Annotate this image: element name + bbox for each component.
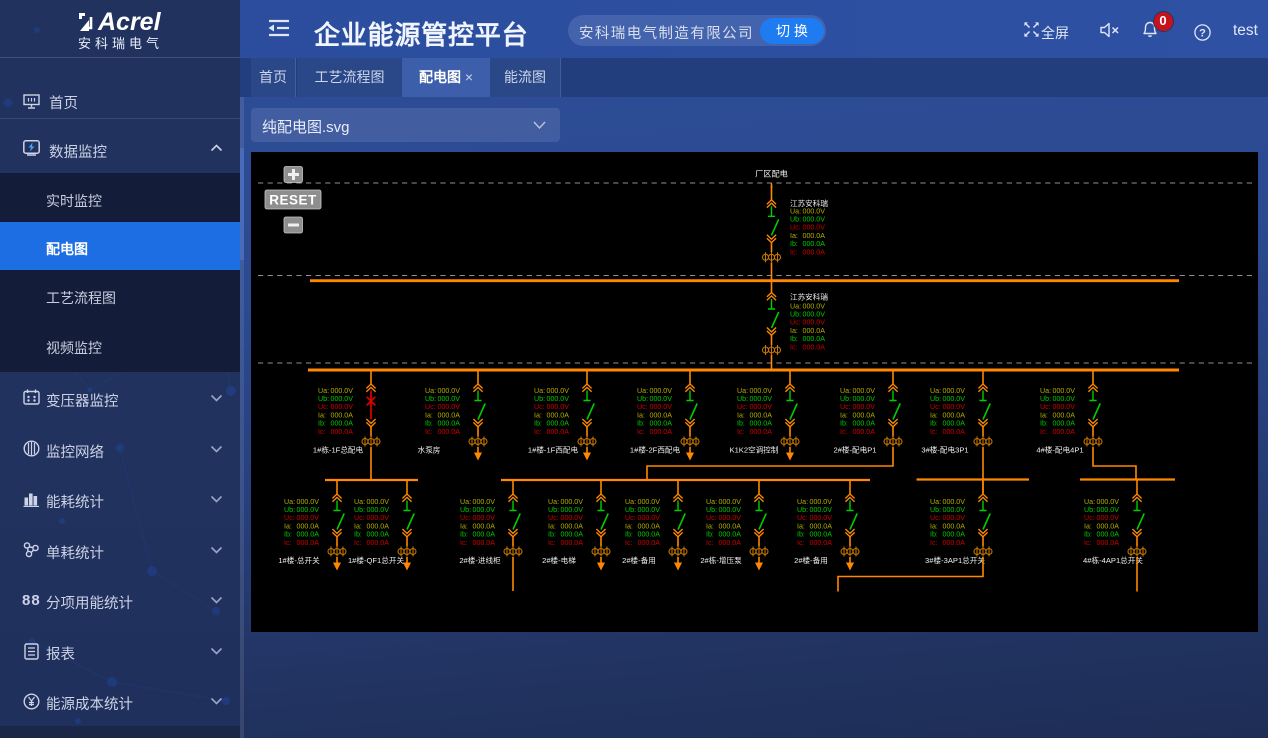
svg-text:Ua:: Ua:: [637, 387, 648, 395]
svg-text:000.0V: 000.0V: [803, 216, 826, 224]
svg-text:000.0A: 000.0A: [1053, 411, 1076, 419]
svg-text:000.0A: 000.0A: [943, 522, 966, 530]
svg-text:Ua:: Ua:: [737, 387, 748, 395]
svg-text:Ib:: Ib:: [284, 531, 292, 539]
svg-text:000.0A: 000.0A: [1097, 539, 1120, 547]
svg-text:Ic:: Ic:: [797, 539, 805, 547]
svg-text:000.0V: 000.0V: [810, 506, 833, 514]
svg-text:1#楼-总开关: 1#楼-总开关: [278, 555, 320, 565]
svg-text:Ua:: Ua:: [425, 387, 436, 395]
svg-text:Ua:: Ua:: [840, 387, 851, 395]
svg-text:000.0V: 000.0V: [803, 311, 826, 319]
svg-text:000.0A: 000.0A: [473, 522, 496, 530]
svg-text:Ub:: Ub:: [1040, 395, 1051, 403]
svg-text:000.0A: 000.0A: [803, 232, 826, 240]
svg-text:Uc:: Uc:: [706, 514, 717, 522]
svg-text:000.0A: 000.0A: [561, 539, 584, 547]
svg-text:000.0A: 000.0A: [297, 522, 320, 530]
svg-text:Ua:: Ua:: [1040, 387, 1051, 395]
svg-text:000.0V: 000.0V: [853, 395, 876, 403]
svg-text:000.0V: 000.0V: [547, 395, 570, 403]
svg-text:000.0A: 000.0A: [638, 539, 661, 547]
svg-text:Ic:: Ic:: [930, 428, 938, 436]
svg-text:000.0A: 000.0A: [719, 522, 742, 530]
svg-text:000.0A: 000.0A: [561, 531, 584, 539]
svg-text:000.0V: 000.0V: [438, 387, 461, 395]
svg-text:Uc:: Uc:: [354, 514, 365, 522]
svg-text:3#楼-配电3P1: 3#楼-配电3P1: [921, 445, 968, 455]
svg-text:Ia:: Ia:: [425, 411, 433, 419]
svg-text:厂区配电: 厂区配电: [755, 169, 788, 179]
svg-text:000.0V: 000.0V: [438, 403, 461, 411]
svg-text:Ib:: Ib:: [460, 531, 468, 539]
svg-text:000.0V: 000.0V: [810, 498, 833, 506]
svg-text:Ua:: Ua:: [534, 387, 545, 395]
svg-text:1#楼-1F西配电: 1#楼-1F西配电: [528, 445, 579, 455]
svg-text:000.0A: 000.0A: [810, 522, 833, 530]
svg-text:1#楼-QF1总开关: 1#楼-QF1总开关: [348, 555, 405, 565]
svg-text:000.0V: 000.0V: [719, 514, 742, 522]
svg-text:000.0A: 000.0A: [638, 522, 661, 530]
svg-text:000.0V: 000.0V: [473, 514, 496, 522]
svg-text:Ua:: Ua:: [548, 498, 559, 506]
svg-text:000.0A: 000.0A: [297, 539, 320, 547]
svg-text:Uc:: Uc:: [318, 403, 329, 411]
svg-text:000.0V: 000.0V: [943, 498, 966, 506]
svg-text:Ic:: Ic:: [625, 539, 633, 547]
svg-text:Ia:: Ia:: [625, 522, 633, 530]
svg-text:000.0A: 000.0A: [547, 420, 570, 428]
svg-text:Ub:: Ub:: [930, 395, 941, 403]
svg-text:000.0V: 000.0V: [750, 395, 773, 403]
svg-text:Ua:: Ua:: [460, 498, 471, 506]
svg-text:2#楼-进线柜: 2#楼-进线柜: [459, 555, 501, 565]
svg-text:000.0V: 000.0V: [297, 498, 320, 506]
svg-text:000.0A: 000.0A: [438, 411, 461, 419]
svg-text:000.0A: 000.0A: [750, 411, 773, 419]
svg-text:000.0V: 000.0V: [331, 387, 354, 395]
svg-text:000.0A: 000.0A: [547, 411, 570, 419]
svg-text:000.0V: 000.0V: [297, 514, 320, 522]
svg-text:Uc:: Uc:: [534, 403, 545, 411]
svg-text:000.0A: 000.0A: [650, 420, 673, 428]
svg-text:Ic:: Ic:: [637, 428, 645, 436]
svg-text:2#楼-电梯: 2#楼-电梯: [542, 555, 576, 565]
svg-text:Uc:: Uc:: [790, 224, 801, 232]
svg-text:Ib:: Ib:: [706, 531, 714, 539]
svg-text:Ia:: Ia:: [930, 522, 938, 530]
svg-text:000.0V: 000.0V: [561, 506, 584, 514]
svg-text:Ia:: Ia:: [637, 411, 645, 419]
svg-text:Ic:: Ic:: [790, 343, 798, 351]
svg-text:Ub:: Ub:: [737, 395, 748, 403]
svg-text:Ua:: Ua:: [625, 498, 636, 506]
svg-text:000.0A: 000.0A: [853, 411, 876, 419]
svg-text:Ub:: Ub:: [534, 395, 545, 403]
svg-text:Ic:: Ic:: [737, 428, 745, 436]
svg-text:Ia:: Ia:: [790, 327, 798, 335]
svg-text:Ic:: Ic:: [930, 539, 938, 547]
svg-text:Ib:: Ib:: [790, 335, 798, 343]
svg-text:K1K2空调控制: K1K2空调控制: [730, 445, 779, 455]
svg-text:Ib:: Ib:: [318, 420, 326, 428]
svg-text:Ib:: Ib:: [625, 531, 633, 539]
svg-text:000.0V: 000.0V: [650, 403, 673, 411]
svg-text:Ib:: Ib:: [930, 531, 938, 539]
svg-text:Ub:: Ub:: [1084, 506, 1095, 514]
svg-text:Uc:: Uc:: [548, 514, 559, 522]
svg-text:Ua:: Ua:: [930, 387, 941, 395]
svg-text:Uc:: Uc:: [637, 403, 648, 411]
svg-text:Ic:: Ic:: [1040, 428, 1048, 436]
svg-text:000.0A: 000.0A: [943, 420, 966, 428]
svg-text:000.0V: 000.0V: [650, 395, 673, 403]
svg-text:Ia:: Ia:: [534, 411, 542, 419]
svg-text:1#楼-2F西配电: 1#楼-2F西配电: [630, 445, 681, 455]
svg-text:000.0A: 000.0A: [943, 531, 966, 539]
svg-text:Ub:: Ub:: [930, 506, 941, 514]
svg-text:1#栋-1F总配电: 1#栋-1F总配电: [313, 445, 364, 455]
svg-text:000.0V: 000.0V: [561, 498, 584, 506]
svg-text:Uc:: Uc:: [790, 319, 801, 327]
svg-text:000.0V: 000.0V: [638, 506, 661, 514]
svg-text:Ub:: Ub:: [790, 216, 801, 224]
svg-text:000.0A: 000.0A: [803, 327, 826, 335]
svg-text:000.0A: 000.0A: [803, 335, 826, 343]
svg-text:000.0A: 000.0A: [650, 411, 673, 419]
svg-text:Ia:: Ia:: [284, 522, 292, 530]
svg-text:Uc:: Uc:: [930, 514, 941, 522]
svg-text:Ua:: Ua:: [354, 498, 365, 506]
svg-text:000.0A: 000.0A: [438, 420, 461, 428]
svg-text:000.0V: 000.0V: [367, 498, 390, 506]
svg-text:000.0A: 000.0A: [438, 428, 461, 436]
svg-text:000.0V: 000.0V: [943, 514, 966, 522]
svg-text:000.0A: 000.0A: [943, 539, 966, 547]
svg-text:2#栋-增压泵: 2#栋-增压泵: [700, 555, 742, 565]
svg-text:000.0A: 000.0A: [853, 420, 876, 428]
svg-text:000.0V: 000.0V: [367, 506, 390, 514]
svg-text:000.0A: 000.0A: [297, 531, 320, 539]
svg-text:000.0V: 000.0V: [331, 403, 354, 411]
svg-text:000.0V: 000.0V: [803, 319, 826, 327]
svg-text:000.0A: 000.0A: [803, 343, 826, 351]
svg-text:Ia:: Ia:: [706, 522, 714, 530]
svg-text:?: ?: [1199, 27, 1206, 39]
svg-text:Ib:: Ib:: [548, 531, 556, 539]
svg-text:000.0V: 000.0V: [943, 387, 966, 395]
svg-text:Ia:: Ia:: [318, 411, 326, 419]
svg-text:Ia:: Ia:: [354, 522, 362, 530]
svg-text:Ub:: Ub:: [354, 506, 365, 514]
svg-text:000.0A: 000.0A: [719, 539, 742, 547]
svg-text:Ua:: Ua:: [1084, 498, 1095, 506]
svg-text:Ib:: Ib:: [534, 420, 542, 428]
svg-text:Ub:: Ub:: [797, 506, 808, 514]
svg-text:000.0A: 000.0A: [1053, 428, 1076, 436]
svg-text:Ib:: Ib:: [840, 420, 848, 428]
svg-text:000.0V: 000.0V: [1097, 506, 1120, 514]
svg-text:Ub:: Ub:: [425, 395, 436, 403]
svg-text:Uc:: Uc:: [1084, 514, 1095, 522]
svg-text:Ua:: Ua:: [790, 207, 801, 215]
svg-text:Ic:: Ic:: [284, 539, 292, 547]
svg-text:000.0A: 000.0A: [367, 522, 390, 530]
svg-text:4#栋-4AP1总开关: 4#栋-4AP1总开关: [1083, 555, 1143, 565]
svg-text:Uc:: Uc:: [840, 403, 851, 411]
svg-text:Ua:: Ua:: [790, 302, 801, 310]
svg-text:Ib:: Ib:: [797, 531, 805, 539]
svg-text:Uc:: Uc:: [425, 403, 436, 411]
svg-text:Uc:: Uc:: [460, 514, 471, 522]
svg-text:Ua:: Ua:: [284, 498, 295, 506]
svg-text:Ia:: Ia:: [737, 411, 745, 419]
svg-text:Ub:: Ub:: [460, 506, 471, 514]
svg-text:2#楼-备用: 2#楼-备用: [622, 555, 656, 565]
svg-text:Ic:: Ic:: [840, 428, 848, 436]
svg-text:000.0A: 000.0A: [473, 531, 496, 539]
svg-text:江苏安科瑞: 江苏安科瑞: [790, 292, 828, 302]
svg-text:000.0V: 000.0V: [943, 506, 966, 514]
svg-text:000.0V: 000.0V: [943, 403, 966, 411]
svg-text:Ic:: Ic:: [425, 428, 433, 436]
svg-text:000.0V: 000.0V: [547, 403, 570, 411]
svg-text:Ic:: Ic:: [706, 539, 714, 547]
svg-text:000.0A: 000.0A: [803, 240, 826, 248]
svg-text:000.0V: 000.0V: [803, 207, 826, 215]
svg-text:Uc:: Uc:: [737, 403, 748, 411]
svg-text:Ia:: Ia:: [460, 522, 468, 530]
svg-text:000.0V: 000.0V: [473, 506, 496, 514]
svg-text:Ua:: Ua:: [797, 498, 808, 506]
svg-text:000.0V: 000.0V: [650, 387, 673, 395]
svg-text:Ic:: Ic:: [318, 428, 326, 436]
svg-text:Uc:: Uc:: [930, 403, 941, 411]
svg-text:000.0V: 000.0V: [853, 387, 876, 395]
svg-text:000.0A: 000.0A: [473, 539, 496, 547]
svg-text:000.0V: 000.0V: [750, 403, 773, 411]
svg-text:Ib:: Ib:: [1084, 531, 1092, 539]
svg-text:000.0V: 000.0V: [367, 514, 390, 522]
svg-text:000.0A: 000.0A: [943, 428, 966, 436]
svg-text:000.0V: 000.0V: [943, 395, 966, 403]
svg-text:000.0V: 000.0V: [473, 498, 496, 506]
svg-text:Ib:: Ib:: [425, 420, 433, 428]
svg-text:000.0A: 000.0A: [367, 531, 390, 539]
svg-text:Ib:: Ib:: [637, 420, 645, 428]
svg-text:000.0V: 000.0V: [1053, 395, 1076, 403]
svg-text:000.0A: 000.0A: [367, 539, 390, 547]
svg-text:000.0V: 000.0V: [297, 506, 320, 514]
svg-text:000.0V: 000.0V: [719, 498, 742, 506]
svg-text:Ub:: Ub:: [840, 395, 851, 403]
svg-text:000.0V: 000.0V: [331, 395, 354, 403]
svg-text:Ub:: Ub:: [318, 395, 329, 403]
svg-text:000.0A: 000.0A: [561, 522, 584, 530]
svg-text:Uc:: Uc:: [625, 514, 636, 522]
svg-text:Ia:: Ia:: [790, 232, 798, 240]
svg-text:000.0V: 000.0V: [1097, 498, 1120, 506]
svg-text:000.0A: 000.0A: [719, 531, 742, 539]
svg-text:Ic:: Ic:: [548, 539, 556, 547]
svg-text:000.0A: 000.0A: [331, 411, 354, 419]
svg-text:000.0V: 000.0V: [1053, 403, 1076, 411]
svg-text:000.0A: 000.0A: [331, 428, 354, 436]
svg-text:000.0A: 000.0A: [853, 428, 876, 436]
svg-text:000.0A: 000.0A: [331, 420, 354, 428]
svg-text:000.0V: 000.0V: [1097, 514, 1120, 522]
svg-text:000.0A: 000.0A: [1053, 420, 1076, 428]
svg-text:Ia:: Ia:: [930, 411, 938, 419]
svg-text:000.0A: 000.0A: [803, 248, 826, 256]
svg-text:Ub:: Ub:: [637, 395, 648, 403]
svg-text:000.0A: 000.0A: [1097, 531, 1120, 539]
svg-text:Ia:: Ia:: [548, 522, 556, 530]
svg-text:Ib:: Ib:: [354, 531, 362, 539]
svg-text:Ua:: Ua:: [318, 387, 329, 395]
svg-text:000.0A: 000.0A: [810, 539, 833, 547]
svg-text:000.0V: 000.0V: [561, 514, 584, 522]
svg-text:Uc:: Uc:: [284, 514, 295, 522]
svg-text:Ic:: Ic:: [460, 539, 468, 547]
svg-text:3#楼-3AP1总开关: 3#楼-3AP1总开关: [925, 555, 985, 565]
svg-text:000.0V: 000.0V: [1053, 387, 1076, 395]
svg-text:Ub:: Ub:: [790, 311, 801, 319]
svg-text:Uc:: Uc:: [797, 514, 808, 522]
svg-text:Ib:: Ib:: [1040, 420, 1048, 428]
svg-text:000.0V: 000.0V: [438, 395, 461, 403]
svg-text:000.0A: 000.0A: [650, 428, 673, 436]
svg-text:Ua:: Ua:: [930, 498, 941, 506]
svg-text:Ua:: Ua:: [706, 498, 717, 506]
svg-text:Ic:: Ic:: [1084, 539, 1092, 547]
svg-text:000.0A: 000.0A: [638, 531, 661, 539]
svg-text:000.0V: 000.0V: [638, 498, 661, 506]
svg-text:000.0V: 000.0V: [719, 506, 742, 514]
svg-text:000.0V: 000.0V: [853, 403, 876, 411]
svg-text:RESET: RESET: [269, 193, 317, 208]
svg-text:000.0V: 000.0V: [803, 224, 826, 232]
svg-text:2#楼-备用: 2#楼-备用: [794, 555, 828, 565]
svg-text:000.0V: 000.0V: [803, 302, 826, 310]
svg-text:4#楼-配电4P1: 4#楼-配电4P1: [1036, 445, 1083, 455]
svg-text:Ia:: Ia:: [1084, 522, 1092, 530]
svg-text:000.0A: 000.0A: [750, 420, 773, 428]
svg-text:Ia:: Ia:: [797, 522, 805, 530]
svg-text:000.0A: 000.0A: [810, 531, 833, 539]
svg-text:000.0A: 000.0A: [943, 411, 966, 419]
svg-text:2#楼-配电P1: 2#楼-配电P1: [833, 445, 876, 455]
svg-text:Ia:: Ia:: [840, 411, 848, 419]
svg-text:水泵房: 水泵房: [418, 445, 441, 455]
svg-text:Ic:: Ic:: [354, 539, 362, 547]
svg-text:000.0A: 000.0A: [1097, 522, 1120, 530]
svg-text:Ub:: Ub:: [706, 506, 717, 514]
svg-text:000.0V: 000.0V: [750, 387, 773, 395]
svg-text:Ib:: Ib:: [737, 420, 745, 428]
svg-text:Ic:: Ic:: [790, 248, 798, 256]
svg-text:Uc:: Uc:: [1040, 403, 1051, 411]
svg-text:Ub:: Ub:: [284, 506, 295, 514]
svg-text:Ub:: Ub:: [625, 506, 636, 514]
svg-text:000.0A: 000.0A: [750, 428, 773, 436]
svg-text:Ia:: Ia:: [1040, 411, 1048, 419]
svg-text:Ic:: Ic:: [534, 428, 542, 436]
svg-text:000.0V: 000.0V: [638, 514, 661, 522]
svg-text:Ub:: Ub:: [548, 506, 559, 514]
svg-text:Ib:: Ib:: [930, 420, 938, 428]
svg-text:000.0A: 000.0A: [547, 428, 570, 436]
svg-text:000.0V: 000.0V: [547, 387, 570, 395]
svg-text:000.0V: 000.0V: [810, 514, 833, 522]
svg-text:Ib:: Ib:: [790, 240, 798, 248]
